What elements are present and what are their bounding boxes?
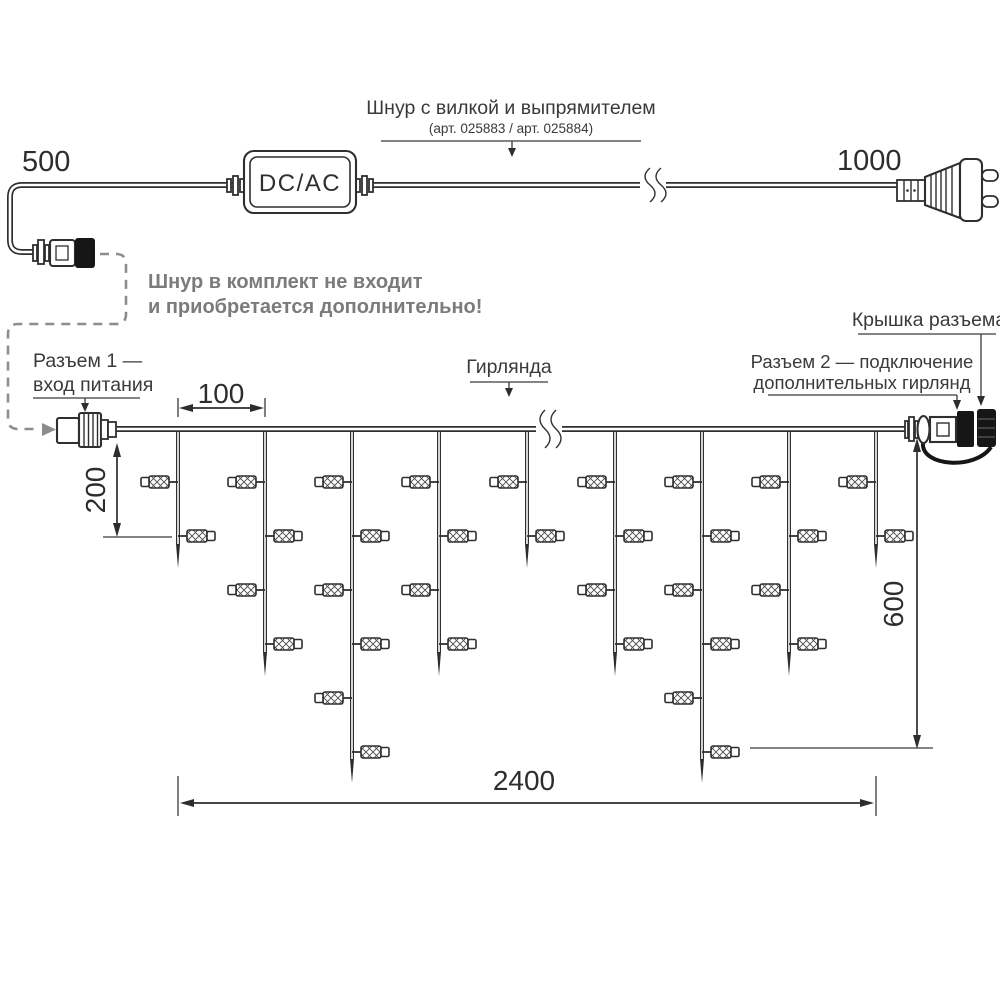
connector-cap bbox=[977, 409, 996, 447]
cord-right-length-label: 1000 bbox=[837, 145, 902, 177]
garland-output-connector bbox=[905, 409, 996, 463]
garland-diagram: DC/AC Шнур с вилкой и выпрямителем (арт.… bbox=[0, 0, 1000, 1000]
connector2-label-line1: Разъем 2 — подключение bbox=[751, 351, 974, 372]
cord-left-length-label: 500 bbox=[22, 146, 70, 178]
note-line-1: Шнур в комплект не входит bbox=[148, 271, 423, 293]
dim-2400-label: 2400 bbox=[493, 765, 555, 796]
connector1-label-line2: вход питания bbox=[33, 374, 153, 396]
garland-drop bbox=[228, 432, 302, 676]
cap-label: Крышка разъема bbox=[852, 309, 1000, 331]
garland-drop bbox=[490, 432, 564, 568]
dashed-route bbox=[8, 254, 126, 436]
cord-title-leader bbox=[381, 141, 641, 157]
garland-drop bbox=[315, 432, 389, 783]
garland-drop bbox=[839, 432, 913, 568]
garland-drop bbox=[578, 432, 652, 676]
cord-end-connector bbox=[33, 238, 95, 268]
power-cord-wire bbox=[10, 167, 898, 252]
dim-200-label: 200 bbox=[80, 467, 111, 514]
garland-input-connector bbox=[57, 413, 116, 447]
garland-drop bbox=[752, 432, 826, 676]
cord-title-label: Шнур с вилкой и выпрямителем bbox=[366, 97, 655, 119]
connector1-label-line1: Разъем 1 — bbox=[33, 350, 143, 372]
cord-articles-label: (арт. 025883 / арт. 025884) bbox=[429, 121, 593, 136]
connector2-label-line2: дополнительных гирлянд bbox=[753, 372, 970, 393]
dimension-short-drop: 200 bbox=[80, 443, 172, 537]
power-plug bbox=[897, 159, 998, 221]
garland-drop bbox=[402, 432, 476, 676]
garland-drop bbox=[141, 432, 215, 568]
garland-label-leader bbox=[470, 382, 548, 397]
garland-label: Гирлянда bbox=[466, 356, 552, 378]
garland-drop bbox=[665, 432, 739, 783]
note-line-2: и приобретается дополнительно! bbox=[148, 296, 482, 318]
dim-600-label: 600 bbox=[878, 581, 909, 628]
dashed-arrow-icon bbox=[42, 423, 56, 436]
connector2-leader bbox=[768, 395, 961, 410]
dimension-total-length: 2400 bbox=[178, 765, 876, 816]
dc-ac-adapter: DC/AC bbox=[227, 151, 373, 213]
diagram-canvas: DC/AC Шнур с вилкой и выпрямителем (арт.… bbox=[0, 0, 1000, 1000]
connector1-leader bbox=[33, 398, 140, 412]
dim-100-label: 100 bbox=[198, 378, 245, 409]
adapter-label: DC/AC bbox=[259, 170, 341, 197]
dimension-drop-spacing: 100 bbox=[178, 378, 265, 417]
